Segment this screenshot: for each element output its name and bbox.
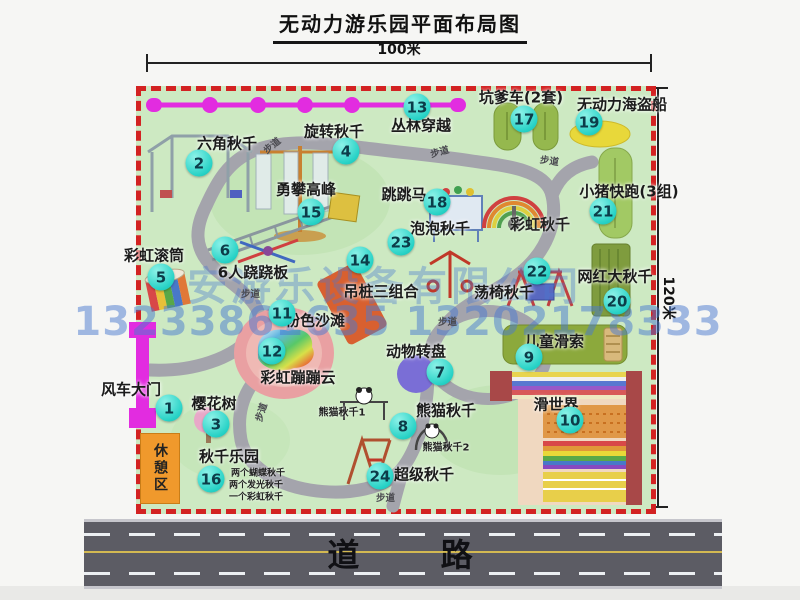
watermark-phone: 13233861635 13202178333 [73,299,722,345]
height-dimension-line [657,88,659,508]
page: 无动力游乐园平面布局图 100米 120米 [0,0,800,600]
width-dimension-tick-right [650,54,652,72]
rest-area: 休憩区 [140,433,180,504]
road: 道 路 [84,519,722,589]
width-dimension-line [147,62,651,64]
rest-area-label: 休憩区 [150,443,170,494]
width-dimension-label: 100米 [377,39,420,59]
width-dimension-tick-left [146,54,148,72]
road-label: 道 路 [327,530,478,576]
